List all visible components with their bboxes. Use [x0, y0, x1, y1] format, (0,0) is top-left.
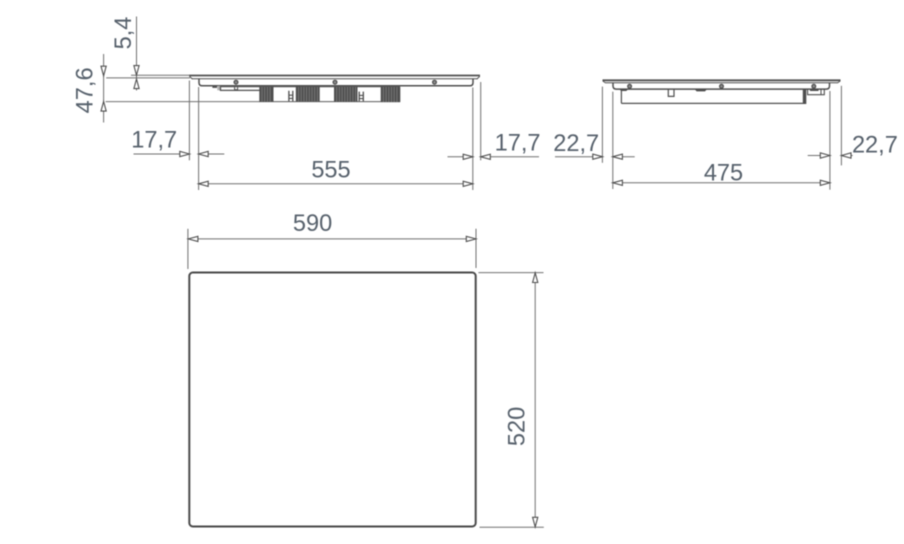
svg-text:475: 475 [704, 160, 743, 186]
svg-text:555: 555 [311, 158, 350, 184]
svg-text:520: 520 [505, 407, 531, 446]
svg-text:590: 590 [293, 211, 332, 237]
svg-text:17,7: 17,7 [495, 131, 541, 157]
svg-text:5,4: 5,4 [111, 17, 137, 50]
svg-text:47,6: 47,6 [73, 67, 99, 113]
svg-text:22,7: 22,7 [553, 131, 599, 157]
svg-text:22,7: 22,7 [852, 132, 898, 158]
svg-text:17,7: 17,7 [131, 128, 177, 154]
